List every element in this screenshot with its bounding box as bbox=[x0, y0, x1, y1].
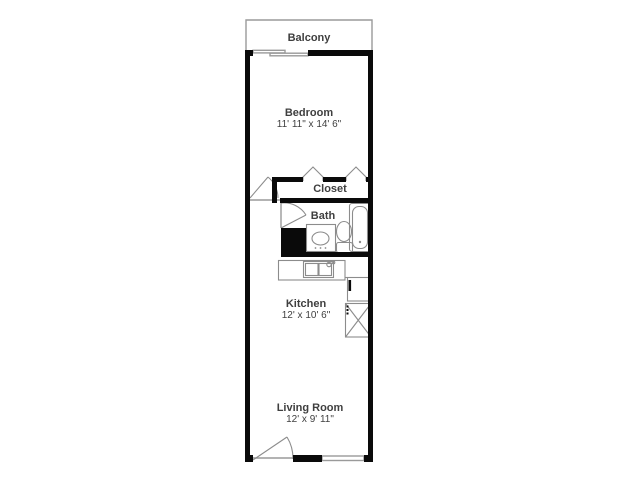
bedroom-label: Bedroom 11' 11" x 14' 6" bbox=[277, 107, 341, 130]
left-exterior-wall bbox=[245, 50, 250, 462]
entry-door bbox=[253, 437, 293, 460]
kitchen-dimensions: 12' x 10' 6" bbox=[282, 310, 331, 321]
bottom-wall-left-post bbox=[245, 455, 253, 462]
closet-top-wall-right bbox=[366, 177, 373, 182]
bath-name: Bath bbox=[311, 210, 335, 222]
refrigerator bbox=[345, 278, 371, 302]
bedroom-dimensions: 11' 11" x 14' 6" bbox=[277, 119, 341, 130]
bath-top-wall bbox=[280, 198, 373, 203]
living-room-label: Living Room 12' x 9' 11" bbox=[277, 402, 344, 425]
balcony-name: Balcony bbox=[288, 32, 331, 44]
toilet bbox=[337, 222, 353, 253]
balcony-label: Balcony bbox=[288, 32, 331, 44]
living-room-name: Living Room bbox=[277, 402, 344, 414]
closet-left-wall bbox=[272, 177, 277, 203]
living-room-window bbox=[322, 456, 364, 461]
top-wall-right-segment bbox=[308, 50, 373, 56]
floorplan-canvas: Balcony Bedroom 11' 11" x 14' 6" Closet … bbox=[0, 0, 640, 480]
plumbing-chase bbox=[281, 228, 306, 253]
top-wall-left-post bbox=[245, 50, 253, 56]
bath-door bbox=[281, 203, 306, 228]
vanity-sink bbox=[307, 225, 336, 252]
kitchen-name: Kitchen bbox=[282, 298, 331, 310]
bottom-wall-right-post bbox=[364, 455, 373, 462]
kitchen-sink bbox=[304, 261, 335, 277]
bedroom-name: Bedroom bbox=[277, 107, 341, 119]
bath-label: Bath bbox=[311, 210, 335, 222]
thin-linework bbox=[246, 20, 372, 461]
washer-dryer bbox=[346, 304, 372, 338]
bottom-wall-mid-segment bbox=[293, 455, 322, 462]
kitchen-label: Kitchen 12' x 10' 6" bbox=[282, 298, 331, 321]
closet-name: Closet bbox=[313, 183, 347, 195]
closet-label: Closet bbox=[313, 183, 347, 195]
living-room-dimensions: 12' x 9' 11" bbox=[277, 414, 344, 425]
balcony-sliding-door bbox=[253, 50, 308, 56]
closet-top-wall-mid bbox=[323, 177, 346, 182]
